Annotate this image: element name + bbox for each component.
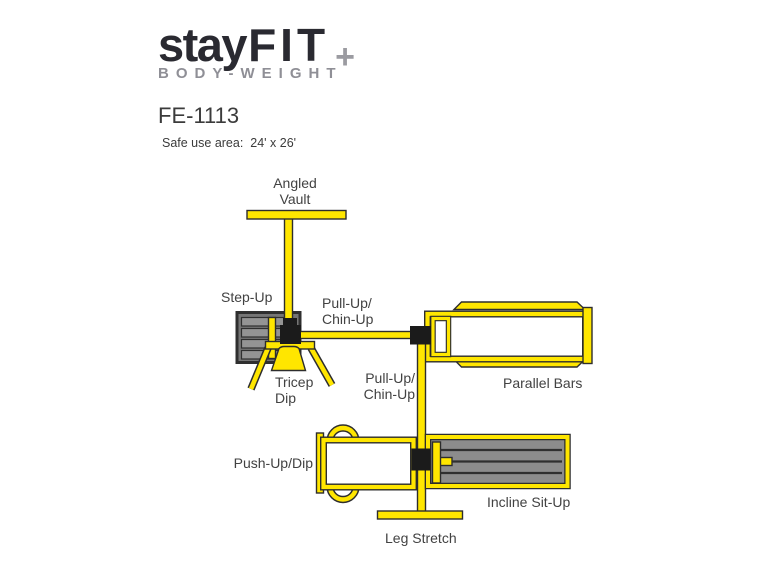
model-number: FE-1113: [158, 103, 239, 129]
plus-icon: +: [335, 38, 355, 77]
brand-stay-text: stay: [158, 17, 246, 72]
label-push-up-dip: Push-Up/Dip: [233, 456, 313, 472]
parallel-bars-equipment: [428, 302, 593, 367]
label-step-up: Step-Up: [221, 290, 272, 306]
brand-logo: stay FIT + BODY-WEIGHT: [158, 17, 355, 82]
sit-up-foot-bar-stem: [440, 458, 452, 466]
leg-stretch-bar: [378, 511, 463, 519]
label-leg-stretch: Leg Stretch: [385, 531, 457, 547]
safe-use-area-note: Safe use area: 24' x 26': [162, 136, 296, 150]
spec-sheet-page: stay FIT + BODY-WEIGHT FE-1113 Safe use …: [0, 0, 768, 576]
push-up-dip-equipment: [317, 428, 414, 500]
sit-up-foot-bar: [433, 442, 441, 483]
brand-wordmark: stay FIT +: [158, 17, 355, 67]
incline-sit-up-equipment: [428, 437, 568, 486]
label-incline-sit-up: Incline Sit-Up: [487, 495, 570, 511]
brand-fit-text: FIT: [248, 18, 329, 72]
junction-clamp-2: [410, 326, 431, 345]
pull-up-chin-up-bar: [292, 332, 416, 339]
label-tricep-dip: Tricep Dip: [275, 375, 313, 406]
brand-tagline: BODY-WEIGHT: [158, 65, 355, 82]
label-pull-up-chin-up-top: Pull-Up/ Chin-Up: [322, 296, 373, 327]
parallel-bars-end-cap: [583, 308, 592, 364]
equipment-diagram: [0, 0, 768, 576]
junction-clamp-3: [412, 449, 431, 471]
label-pull-up-chin-up-mid: Pull-Up/ Chin-Up: [338, 371, 415, 402]
pull-up-chin-up-post: [418, 340, 426, 514]
label-angled-vault: Angled Vault: [253, 176, 337, 207]
label-parallel-bars: Parallel Bars: [503, 376, 582, 392]
